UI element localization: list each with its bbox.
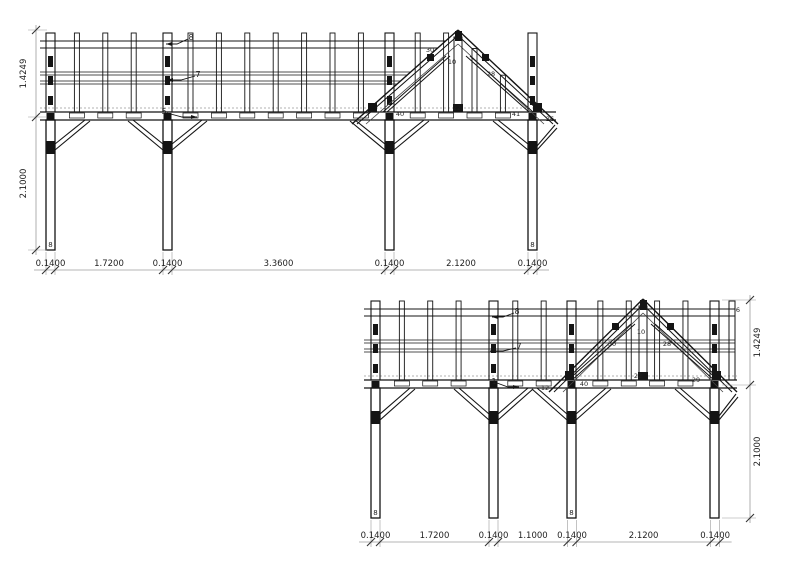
stud: [541, 301, 546, 380]
stud-hardware-mark: [373, 344, 378, 353]
post-top-connector: [529, 113, 537, 120]
king-post: [454, 37, 462, 112]
post-top-connector: [568, 381, 576, 388]
post: [489, 388, 498, 518]
brace-joint-block: [710, 411, 719, 424]
knee-brace: [680, 388, 710, 414]
stud: [131, 33, 136, 112]
knee-brace: [454, 389, 489, 420]
stud-hardware-mark: [48, 56, 53, 67]
part-number-label: 26: [546, 115, 554, 123]
stud-hardware-mark: [530, 76, 535, 85]
stud-hardware-mark: [491, 364, 496, 373]
stud-base-plate: [678, 381, 693, 386]
post-base-label: 8: [48, 241, 52, 249]
stud-hardware-mark: [373, 324, 378, 335]
knee-brace: [380, 389, 415, 420]
stud-hardware-mark: [48, 96, 53, 105]
stud: [330, 33, 335, 112]
knee-brace: [498, 389, 533, 420]
knee-brace: [133, 120, 163, 144]
heel-block-left: [565, 371, 574, 380]
dim-label-horizontal: 0.1400: [518, 259, 548, 269]
part-number-label: 12: [541, 384, 549, 392]
stud-base-plate: [451, 381, 466, 386]
stud-base-plate: [439, 113, 454, 118]
stud-base-plate: [325, 113, 340, 118]
knee-brace: [493, 121, 528, 150]
stud-hardware-mark: [569, 344, 574, 353]
truss-strut-right: [470, 56, 533, 112]
leader-label: 8: [514, 307, 519, 316]
stud: [74, 33, 79, 112]
truss-strut-right: [466, 56, 529, 112]
dim-label-horizontal: 0.1400: [700, 531, 730, 541]
corner-stud: [729, 301, 735, 380]
dim-label-horizontal: 0.1400: [153, 259, 183, 269]
stud-base-plate: [69, 113, 84, 118]
post: [710, 388, 719, 518]
stud-base-plate: [394, 381, 409, 386]
knee-brace: [498, 120, 528, 144]
knee-brace: [576, 389, 611, 420]
knee-brace: [394, 120, 424, 144]
post-base-label: 8: [569, 509, 573, 517]
heel-block-right: [712, 371, 721, 380]
dim-label-horizontal: 3.3600: [264, 259, 294, 269]
knee-brace: [675, 389, 710, 420]
knee-brace: [576, 388, 606, 414]
purlin-block-left: [427, 54, 434, 61]
knee-brace: [498, 388, 528, 414]
leader-label: 7: [195, 70, 200, 79]
brace-joint-block: [567, 411, 576, 424]
leader-label: 5: [161, 107, 166, 116]
knee-brace: [172, 121, 207, 150]
purlin-block-right: [482, 54, 489, 61]
brace-joint-block: [528, 141, 537, 154]
stud-hardware-mark: [530, 56, 535, 67]
eave-strut: [537, 125, 555, 146]
stud-base-plate: [621, 381, 636, 386]
stud-hardware-mark: [165, 56, 170, 67]
dim-label-horizontal: 1.1000: [518, 531, 548, 541]
stud: [302, 33, 307, 112]
stud-base-plate: [593, 381, 608, 386]
stud: [456, 301, 461, 380]
rafter-left: [549, 299, 643, 392]
leader-arrow: [191, 115, 197, 119]
leader-label: 1: [491, 377, 496, 386]
knee-brace: [350, 121, 385, 150]
stud-base-plate: [650, 381, 665, 386]
heel-block-right: [533, 103, 542, 112]
stud-base-plate: [268, 113, 283, 118]
post: [567, 388, 576, 518]
stud: [399, 301, 404, 380]
part-number-label: 40: [580, 380, 588, 388]
post: [385, 120, 394, 250]
stud-base-plate: [211, 113, 226, 118]
dim-label-horizontal: 2.1200: [446, 259, 476, 269]
rafter-right: [458, 30, 558, 124]
dim-label-vertical: 2.1000: [19, 169, 29, 199]
part-number-label: 28: [663, 340, 671, 348]
timber-frame-elevations: 0.14001.72000.14003.36000.14002.12000.14…: [0, 0, 800, 576]
stud: [428, 301, 433, 380]
stud-hardware-mark: [165, 96, 170, 105]
post-top-connector: [372, 381, 380, 388]
knee-brace: [55, 121, 90, 150]
elevation-top: 0.14001.72000.14003.36000.14002.12000.14…: [19, 25, 558, 275]
dim-label-horizontal: 1.7200: [420, 531, 450, 541]
part-number-label: 28: [487, 70, 495, 78]
apex-block: [455, 31, 462, 41]
post-base-label: 8: [530, 241, 534, 249]
stud-hardware-mark: [491, 324, 496, 335]
stud: [188, 33, 193, 112]
dim-label-horizontal: 0.1400: [557, 531, 587, 541]
brace-joint-block: [46, 141, 55, 154]
brace-joint-block: [371, 411, 380, 424]
stud-hardware-mark: [387, 76, 392, 85]
stud-base-plate: [467, 113, 482, 118]
dim-label-horizontal: 0.1400: [361, 531, 391, 541]
stud: [500, 75, 505, 112]
post: [163, 120, 172, 250]
dim-label-vertical: 2.1000: [753, 437, 763, 467]
purlin-block-right: [667, 323, 674, 330]
dim-label-vertical: 1.4249: [19, 59, 29, 89]
brace-joint-block: [163, 141, 172, 154]
post: [371, 388, 380, 518]
post-top-connector: [47, 113, 55, 120]
part-number-label: 22: [634, 372, 642, 380]
part-number-label: 29: [692, 376, 700, 384]
post-base-label: 8: [373, 509, 377, 517]
leader-label: 8: [188, 33, 193, 42]
stud: [103, 33, 108, 112]
part-number-label: 22: [453, 104, 461, 112]
purlin-block-left: [612, 323, 619, 330]
dim-label-vertical: 1.4249: [753, 328, 763, 358]
dim-label-horizontal: 2.1200: [629, 531, 659, 541]
part-number-label: 30: [426, 46, 434, 54]
dim-label-horizontal: 1.7200: [94, 259, 124, 269]
rafter-left: [352, 30, 458, 124]
stud-hardware-mark: [569, 324, 574, 335]
stud-hardware-mark: [48, 76, 53, 85]
rafter-right: [643, 299, 737, 392]
knee-brace: [394, 121, 429, 150]
stud-base-plate: [508, 381, 523, 386]
knee-brace: [380, 388, 410, 414]
stud-base-plate: [240, 113, 255, 118]
heel-block-left: [368, 103, 377, 112]
part-number-label: 6: [736, 306, 740, 314]
stud: [273, 33, 278, 112]
knee-brace: [128, 121, 163, 150]
knee-brace: [459, 388, 489, 414]
drawing-sheet: 0.14001.72000.14003.36000.14002.12000.14…: [0, 0, 800, 576]
part-number-label: 41: [512, 110, 520, 118]
knee-brace: [55, 120, 85, 144]
leader-arrow: [166, 42, 172, 46]
elevation-bottom: 0.14001.72000.14001.10000.14002.12000.14…: [359, 295, 763, 547]
knee-brace: [355, 120, 385, 144]
dim-label-horizontal: 0.1400: [479, 531, 509, 541]
brace-joint-block: [489, 411, 498, 424]
post: [46, 120, 55, 250]
part-number-label: 40: [396, 110, 404, 118]
stud-base-plate: [495, 113, 510, 118]
stud: [245, 33, 250, 112]
eave-strut: [719, 394, 736, 416]
dim-label-horizontal: 0.1400: [36, 259, 66, 269]
dim-label-horizontal: 0.1400: [375, 259, 405, 269]
eave-strut: [537, 128, 557, 150]
stud-hardware-mark: [712, 344, 717, 353]
knee-brace: [172, 120, 202, 144]
stud: [358, 33, 363, 112]
stud-base-plate: [98, 113, 113, 118]
brace-joint-block: [385, 141, 394, 154]
stud-base-plate: [410, 113, 425, 118]
eave-strut: [719, 397, 738, 420]
leader-label: 7: [516, 342, 521, 351]
stud-base-plate: [126, 113, 141, 118]
stud-base-plate: [423, 381, 438, 386]
stud-hardware-mark: [712, 324, 717, 335]
stud-hardware-mark: [373, 364, 378, 373]
post-top-connector: [711, 381, 719, 388]
knee-brace: [532, 389, 567, 420]
part-number-label: 10: [637, 328, 645, 336]
post-top-connector: [386, 113, 394, 120]
part-number-label: 30: [608, 340, 616, 348]
post: [528, 120, 537, 250]
part-number-label: 10: [448, 58, 456, 66]
stud-hardware-mark: [387, 56, 392, 67]
stud: [216, 33, 221, 112]
stud-base-plate: [297, 113, 312, 118]
apex-block: [640, 300, 647, 310]
